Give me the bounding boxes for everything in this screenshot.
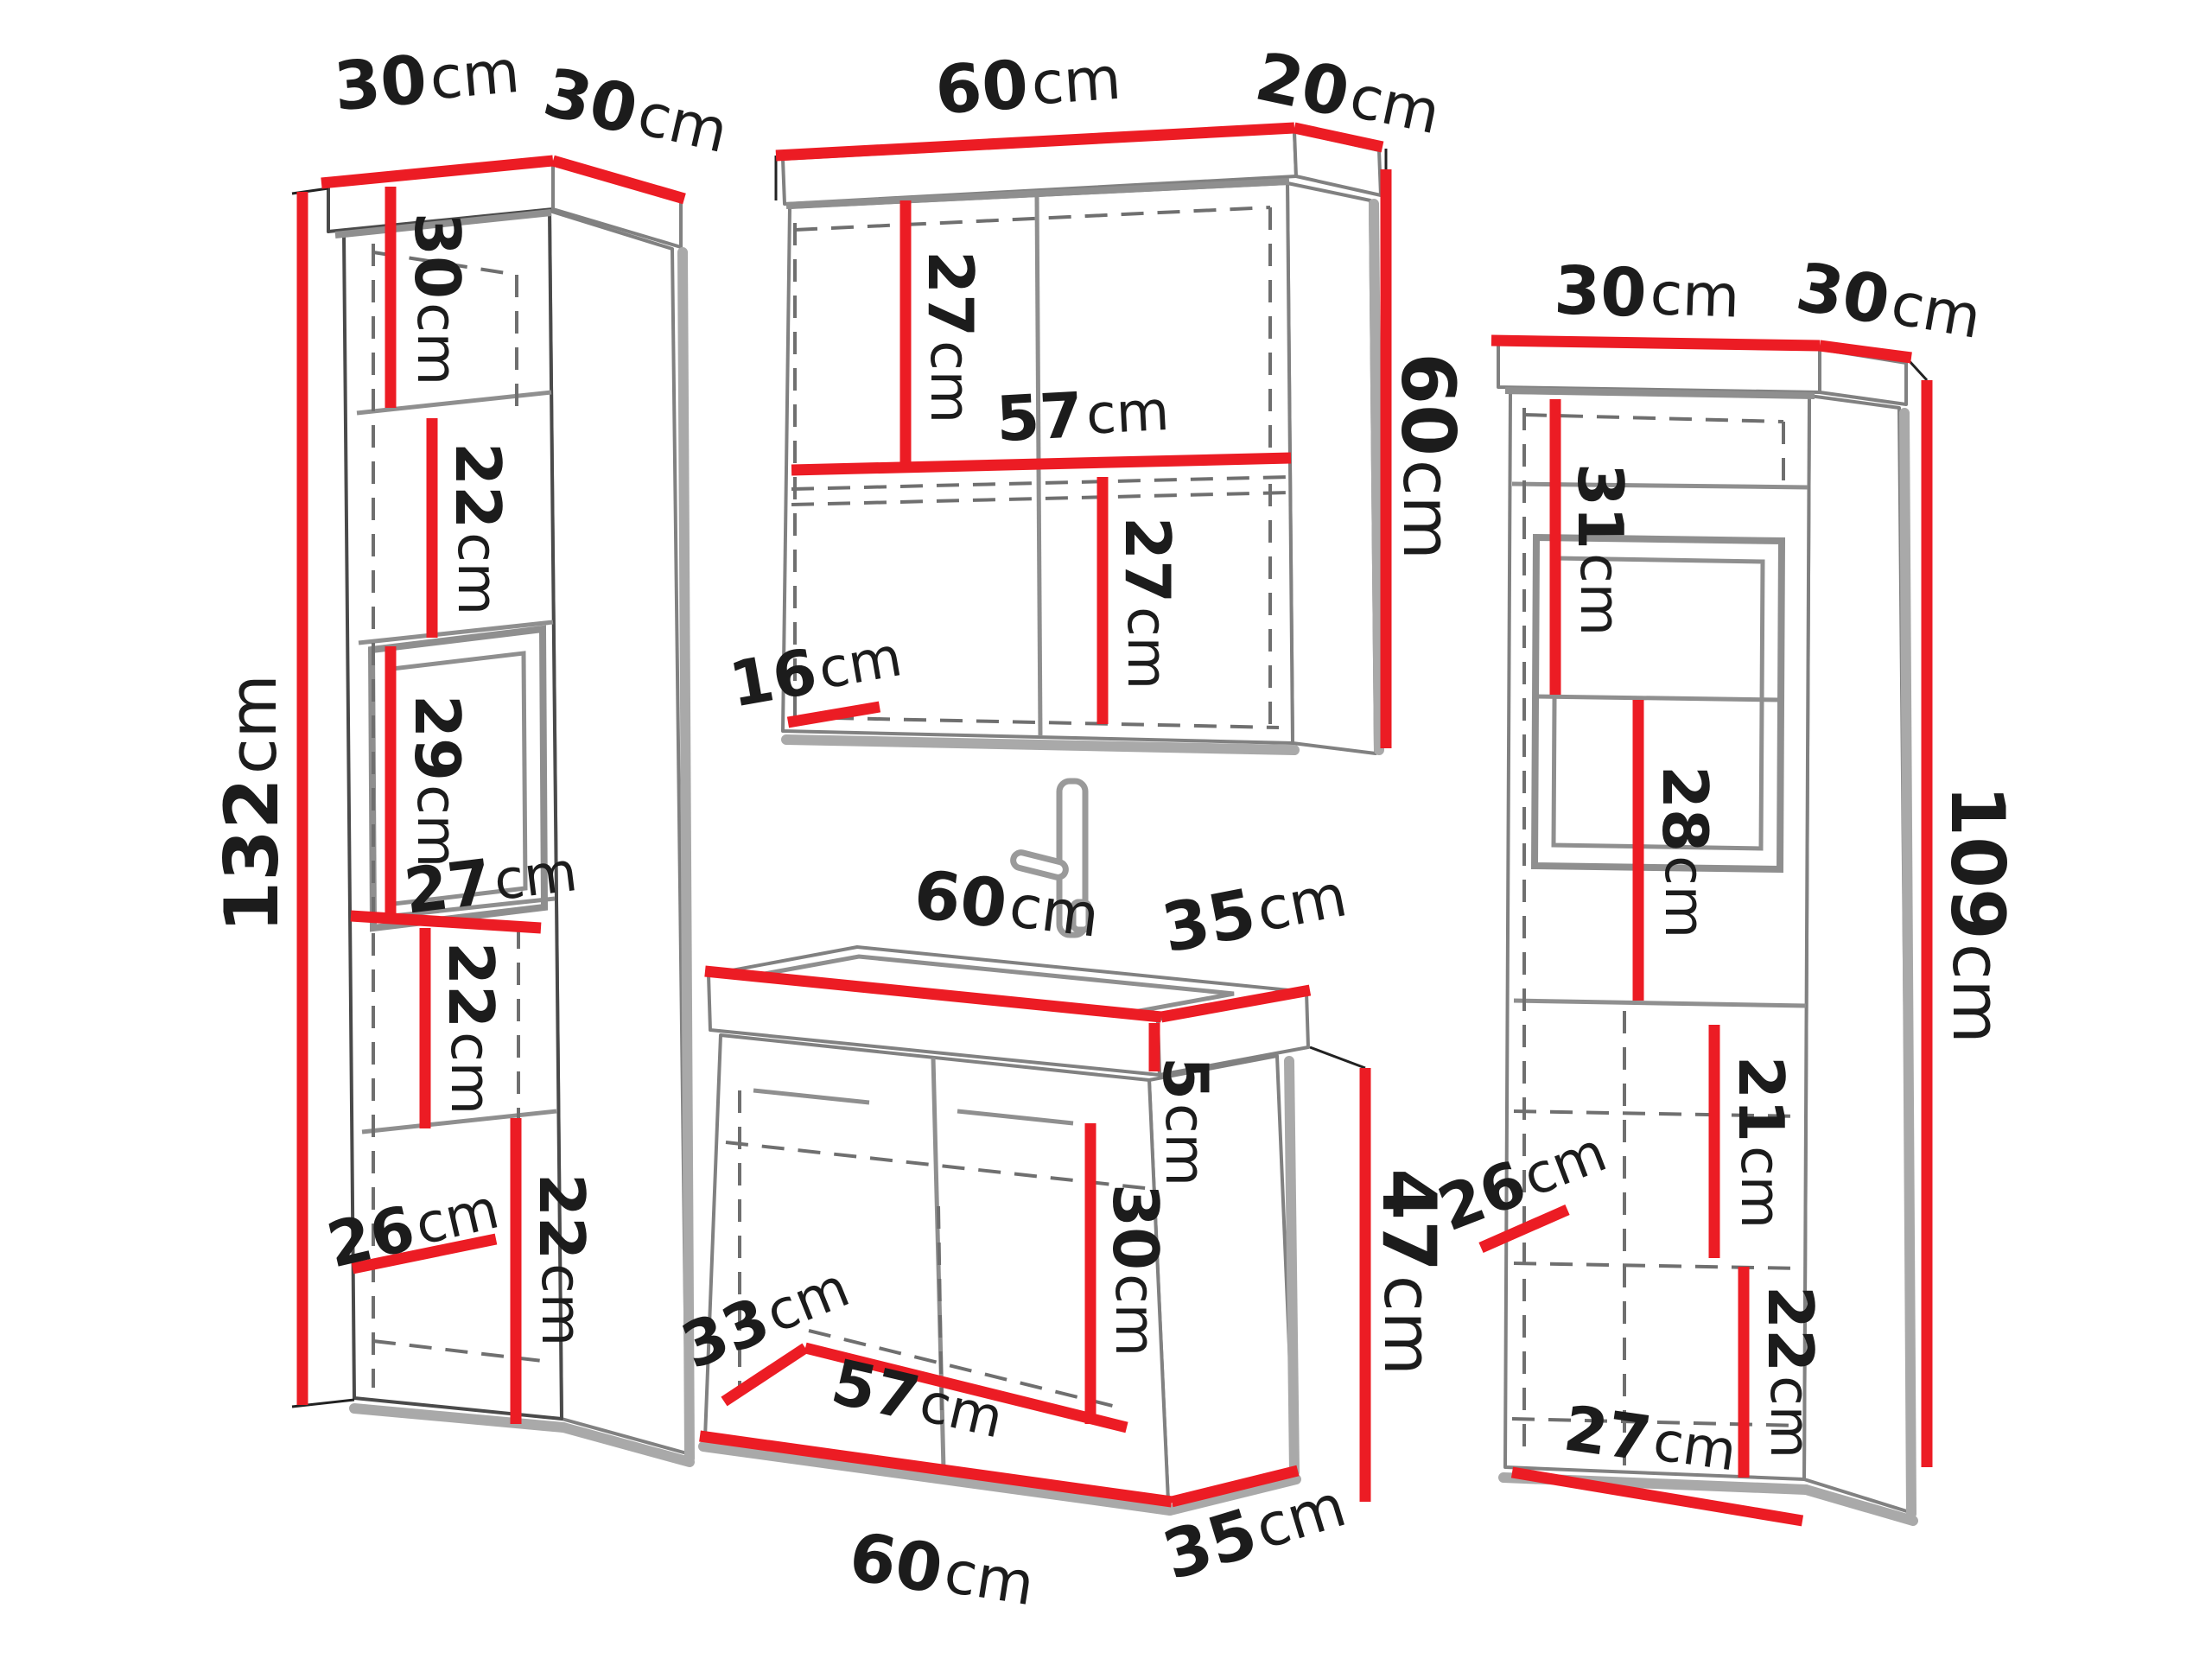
side-right-shadow: [1374, 204, 1379, 750]
dim-label-compartment-1: 31cm: [1564, 463, 1637, 636]
dim-label-upper-compartment: 27cm: [914, 251, 987, 423]
dim-line-top-width: [1491, 340, 1820, 346]
dim-label-height-60: 60cm: [1384, 353, 1471, 560]
crown-front-panel: [1498, 344, 1820, 392]
furniture-dimension-diagram: 30cm 30cm 132cm 30cm 22cm 29cm 27cm 22cm…: [0, 0, 2212, 1659]
dim-label-top-depth: 35cm: [1156, 857, 1353, 968]
dim-label-compartment-3: 21cm: [1725, 1056, 1797, 1229]
dim-label-compartment-4: 22cm: [435, 942, 507, 1115]
dim-label-top-width: 60cm: [933, 40, 1123, 130]
left-tall-cabinet: 30cm 30cm 132cm 30cm 22cm 29cm 27cm 22cm…: [209, 33, 735, 1462]
dim-label-compartment-5: 22cm: [525, 1173, 598, 1346]
dim-label-compartment: 30cm: [1099, 1184, 1172, 1357]
mirror-wall-cabinet: 60cm 20cm 60cm 27cm 57cm 27cm 16cm: [724, 38, 1471, 753]
dim-label-compartment-2: 22cm: [442, 442, 514, 615]
sink-vanity-cabinet: 60cm 35cm 5cm 47cm 30cm 33cm 57cm 60cm 3…: [671, 781, 1452, 1624]
side-right-shadow: [1289, 1061, 1294, 1472]
dim-label-top-depth: 30cm: [537, 54, 734, 170]
dim-label-height-109: 109cm: [1934, 785, 2020, 1043]
cabinet-side-panel: [1287, 183, 1376, 753]
dim-label-compartment-4: 22cm: [1754, 1286, 1827, 1459]
side-right-shadow: [1904, 413, 1911, 1514]
dim-label-top-width: 30cm: [331, 33, 523, 125]
dim-label-lower-compartment: 27cm: [1111, 517, 1184, 690]
dimension-tick: [1310, 1047, 1365, 1068]
dim-label-compartment-2: 28cm: [1649, 766, 1721, 938]
dim-label-top-depth: 30cm: [1791, 249, 1987, 357]
dim-label-compartment-1: 30cm: [401, 213, 474, 385]
diagram-canvas: 30cm 30cm 132cm 30cm 22cm 29cm 27cm 22cm…: [0, 0, 2212, 1659]
dimension-tick: [1908, 359, 1927, 380]
dim-label-top-width: 30cm: [1553, 252, 1741, 335]
dim-label-compartment-3: 29cm: [401, 695, 474, 868]
side-right-shadow: [683, 252, 690, 1459]
dim-label-bottom-width: 60cm: [844, 1518, 1039, 1624]
dim-label-basin-height: 5cm: [1149, 1057, 1222, 1186]
right-tall-cabinet: 30cm 30cm 109cm 31cm 28cm 21cm 26cm 22cm…: [1428, 249, 2020, 1521]
dim-label-height-132: 132cm: [209, 674, 296, 932]
